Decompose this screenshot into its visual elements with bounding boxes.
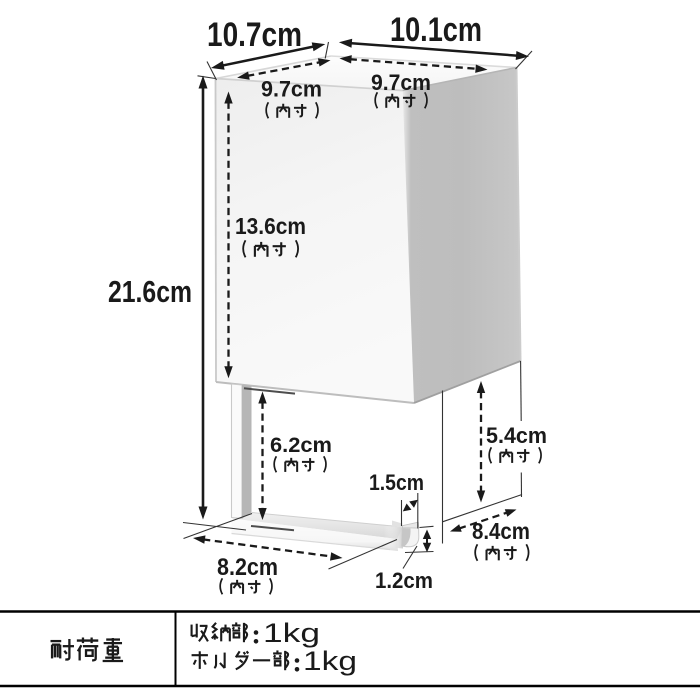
svg-text:1kg: 1kg xyxy=(303,646,357,676)
svg-text:1kg: 1kg xyxy=(263,618,320,648)
svg-text:5.4cm: 5.4cm xyxy=(486,423,547,448)
svg-text:1.2cm: 1.2cm xyxy=(375,568,433,593)
svg-text:1.5cm: 1.5cm xyxy=(369,470,424,495)
svg-text:9.7cm: 9.7cm xyxy=(261,77,322,102)
svg-text:9.7cm: 9.7cm xyxy=(371,70,431,95)
svg-text:10.1cm: 10.1cm xyxy=(390,11,482,49)
svg-text:21.6cm: 21.6cm xyxy=(108,275,192,309)
svg-text:10.7cm: 10.7cm xyxy=(207,16,302,54)
svg-text:6.2cm: 6.2cm xyxy=(270,433,332,457)
svg-text:8.4cm: 8.4cm xyxy=(472,518,530,544)
svg-text:8.2cm: 8.2cm xyxy=(217,554,278,581)
svg-text:13.6cm: 13.6cm xyxy=(235,213,306,239)
